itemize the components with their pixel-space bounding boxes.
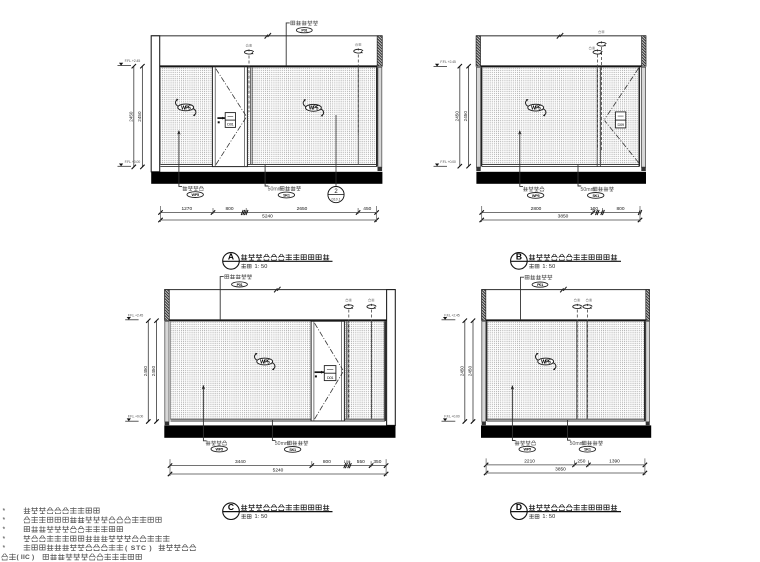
svg-text:*: * <box>3 536 6 543</box>
svg-text:550: 550 <box>357 459 365 465</box>
svg-text:350: 350 <box>373 459 381 465</box>
svg-text:50mm: 50mm <box>275 441 289 447</box>
svg-text:WP5: WP5 <box>309 106 319 112</box>
svg-text:800: 800 <box>225 206 233 212</box>
svg-text:SK1: SK1 <box>283 194 290 198</box>
svg-text:WP5: WP5 <box>192 193 200 197</box>
svg-text:WP5: WP5 <box>216 448 224 452</box>
svg-text:50mm: 50mm <box>268 186 282 192</box>
svg-text:F.F.L +2.45: F.F.L +2.45 <box>440 60 456 64</box>
svg-text:1: 50: 1: 50 <box>542 514 555 520</box>
svg-text:F.F.L +2.45: F.F.L +2.45 <box>128 313 144 317</box>
svg-text:D: D <box>516 502 522 512</box>
svg-text:WP5: WP5 <box>181 105 191 111</box>
svg-text:2800: 2800 <box>531 206 542 212</box>
svg-text:2450: 2450 <box>151 366 156 377</box>
svg-text:2650: 2650 <box>297 206 308 212</box>
svg-text:3440: 3440 <box>235 459 246 465</box>
svg-text:C: C <box>228 502 234 512</box>
svg-text:2210: 2210 <box>524 458 535 464</box>
svg-text:B: B <box>516 252 522 262</box>
svg-text:1: 50: 1: 50 <box>255 264 268 270</box>
svg-text:P01: P01 <box>537 283 543 287</box>
svg-text:SK1: SK1 <box>584 448 591 452</box>
svg-text:2450: 2450 <box>459 366 464 377</box>
svg-text:F.F.L +0.00: F.F.L +0.00 <box>128 415 144 419</box>
svg-text:A: A <box>228 252 234 262</box>
svg-text:2450: 2450 <box>128 111 133 122</box>
svg-text:3850: 3850 <box>558 213 569 219</box>
svg-text:250: 250 <box>577 458 585 464</box>
svg-text:F.F.L +2.45: F.F.L +2.45 <box>125 59 141 63</box>
svg-text:2450: 2450 <box>143 366 148 377</box>
svg-text:( IIC ): ( IIC ) <box>17 554 35 561</box>
svg-text:WP5: WP5 <box>532 194 540 198</box>
svg-text:F.F.L +0.00: F.F.L +0.00 <box>125 160 141 164</box>
svg-text:F.F.L +0.00: F.F.L +0.00 <box>440 160 456 164</box>
svg-text:WP5: WP5 <box>524 448 532 452</box>
svg-text:P01: P01 <box>301 29 307 33</box>
svg-text:1: 50: 1: 50 <box>542 264 555 270</box>
svg-text:F.F.L +2.45: F.F.L +2.45 <box>444 313 460 317</box>
svg-text:100: 100 <box>344 459 351 464</box>
svg-text:5240: 5240 <box>273 467 284 473</box>
svg-text:2450: 2450 <box>468 366 473 377</box>
svg-text:2450: 2450 <box>137 111 142 122</box>
svg-text:P01: P01 <box>237 283 243 287</box>
svg-text:2450: 2450 <box>454 111 459 122</box>
svg-text:1: 50: 1: 50 <box>255 514 268 520</box>
svg-text:*: * <box>3 517 6 524</box>
svg-text:1390: 1390 <box>609 458 620 464</box>
svg-text:1270: 1270 <box>181 206 192 212</box>
svg-text:*: * <box>3 545 6 552</box>
svg-text:2450: 2450 <box>463 111 468 122</box>
svg-text:*: * <box>3 508 6 515</box>
svg-text:WP5: WP5 <box>541 359 551 365</box>
svg-text:D10.1: D10.1 <box>331 198 340 202</box>
svg-text:3850: 3850 <box>555 466 566 472</box>
svg-text:SK1: SK1 <box>592 194 599 198</box>
svg-text:450: 450 <box>363 206 371 212</box>
svg-text:SK1: SK1 <box>289 448 296 452</box>
svg-text:5240: 5240 <box>262 213 273 219</box>
svg-text:*: * <box>3 527 6 534</box>
svg-text:( STC ): ( STC ) <box>125 545 153 552</box>
svg-text:50mm: 50mm <box>581 187 595 193</box>
svg-text:WP5: WP5 <box>531 106 541 112</box>
svg-text:F.F.L +0.00: F.F.L +0.00 <box>444 415 460 419</box>
svg-text:50mm: 50mm <box>570 441 584 447</box>
svg-text:800: 800 <box>323 459 331 465</box>
svg-text:800: 800 <box>616 206 624 212</box>
svg-text:WP5: WP5 <box>260 359 270 365</box>
